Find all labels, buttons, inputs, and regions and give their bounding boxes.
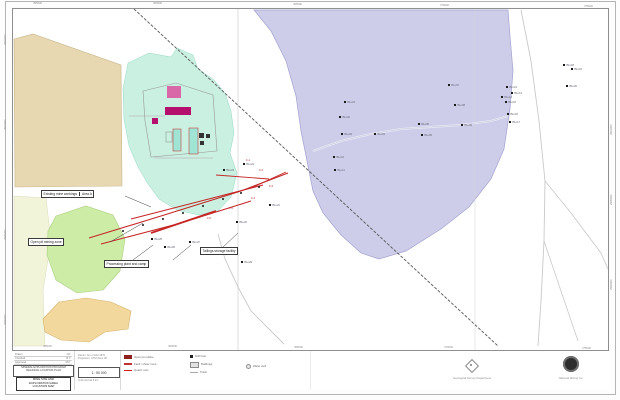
site-building-dark-2 [206,134,210,138]
map-callout: Tailings storage facility [200,247,238,255]
legend-column-2: Drill holeBuildingsTrack [190,355,212,378]
site-building-dark-1 [199,133,204,138]
tick-label-bottom: 360000 [168,345,177,348]
tick-label-right: 2910000 [610,125,613,135]
drill-symbol-icon [190,355,193,358]
titleblock-divider [120,351,121,390]
bldg-symbol-icon [190,362,199,368]
compass-diamond-icon [465,359,479,373]
legend-item: Fault / shear zone [124,363,156,366]
tick-label-left: 2905000 [4,230,7,240]
callout-text: Processing plant and camp [107,262,147,266]
faultz-symbol-icon [124,363,132,365]
fault-label: F-5 [229,207,233,210]
legend-label: Track [200,371,207,374]
legend-item: Open pit outline [124,355,156,359]
tick-label-left: 2915000 [4,35,7,45]
program-line: REGIONAL LOCATION PLAN [14,369,73,372]
callout-text: Open pit mining zone [31,240,62,244]
titleblock-divider [74,351,75,390]
fault-label: F-4 [251,197,255,200]
well-symbol-icon [246,364,251,369]
road-east-main [521,10,545,346]
fault-label: F-2 [259,169,263,172]
legend-column-1: Open pit outlineFault / shear zoneQuartz… [124,355,156,376]
callout-text: Tailings storage facility [203,249,236,253]
legend-label: Open pit outline [134,356,154,359]
legend-item: Drill hole [190,355,212,358]
road-east-branch-1 [545,181,608,294]
legend-item: Buildings [190,362,212,368]
legend-label: Drill hole [195,355,206,358]
tick-label-top: 360000 [153,2,162,5]
tick-label-bottom: 355000 [43,345,52,348]
callout-cell2: Area A [79,192,92,196]
region-lavender [254,10,513,259]
site-building-magenta-bar [165,107,191,115]
site-building-teal-2 [189,128,198,154]
legend-label: Buildings [201,363,212,366]
title-block: DrawnJ.D.CheckedR.T.ApprovedM.K.Date2003… [12,350,609,390]
road-east-branch-2 [544,241,578,341]
region-tan [14,34,122,187]
tick-label-bottom: 370000 [444,346,453,349]
map-callout: Open pit mining zone [28,238,64,246]
map-frame: BH-01BH-02BH-03BH-04BH-05BH-06BH-07BH-08… [12,8,609,352]
program-box: MINERAL EXPLORATION PROGRAMREGIONAL LOCA… [13,365,74,377]
tick-label-right: 2905000 [610,195,613,205]
site-building-teal-1 [173,129,181,151]
legend-item: Water well [246,364,266,369]
site-building-dark-3 [200,141,204,145]
site-building-small-magenta [152,118,158,124]
pit-symbol-icon [124,355,132,359]
tick-label-top: 370000 [440,4,449,7]
tick-label-left: 2900000 [4,315,7,325]
map-callout: Processing plant and camp [104,260,149,268]
tick-label-bottom: 365000 [294,346,303,349]
company-logo [563,356,579,372]
compass-center-icon [470,364,472,366]
titleblock-divider [310,351,311,390]
legend-label: Water well [253,365,266,368]
legend-item: Track [190,371,212,374]
scale-box: 1 : 50 000 [78,367,120,378]
region-orange [43,298,131,342]
tick-label-left: 2910000 [4,120,7,130]
grid-interval-note: Grid interval 5 km [78,379,98,382]
legend-item: Quartz vein [124,369,156,372]
map-canvas: BH-01BH-02BH-03BH-04BH-05BH-06BH-07BH-08… [13,9,608,351]
projection-row: Projection: UTM Zone 38 [78,357,118,360]
tick-label-right: 2900000 [610,280,613,290]
track-symbol-icon [190,372,198,373]
map-callout: Existing mine workingsArea A [41,190,94,198]
fault-label: F-1 [246,159,250,162]
legend-label: Fault / shear zone [134,363,156,366]
fault-label: F-3 [269,185,273,188]
projection-info: Datum: Ain el Abd 1970Projection: UTM Zo… [78,354,118,360]
vein-symbol-icon [124,370,132,371]
legend-column-3: Water well [246,364,266,373]
legend-label: Quartz vein [134,369,148,372]
region-green [47,206,125,293]
survey-logo-caption: Geological Survey Department [430,377,514,380]
fault-line-4 [151,211,216,233]
site-building-pink [167,86,181,98]
survey-logo [464,358,478,372]
map-graphics [13,9,608,351]
company-logo-caption: National Mining Co. [543,377,599,380]
fault-label: F-6 [207,217,211,220]
tick-label-top: 375000 [584,5,593,8]
callout-text: Existing mine workings [44,192,78,196]
title-line: LOCATION MAP [17,385,70,389]
tick-label-top: 355000 [33,2,42,5]
map-sheet: BH-01BH-02BH-03BH-04BH-05BH-06BH-07BH-08… [0,0,620,400]
tick-label-top: 365000 [293,3,302,6]
map-title-box: MINE SITE ANDEXPLORATION AREALOCATION MA… [16,377,71,391]
